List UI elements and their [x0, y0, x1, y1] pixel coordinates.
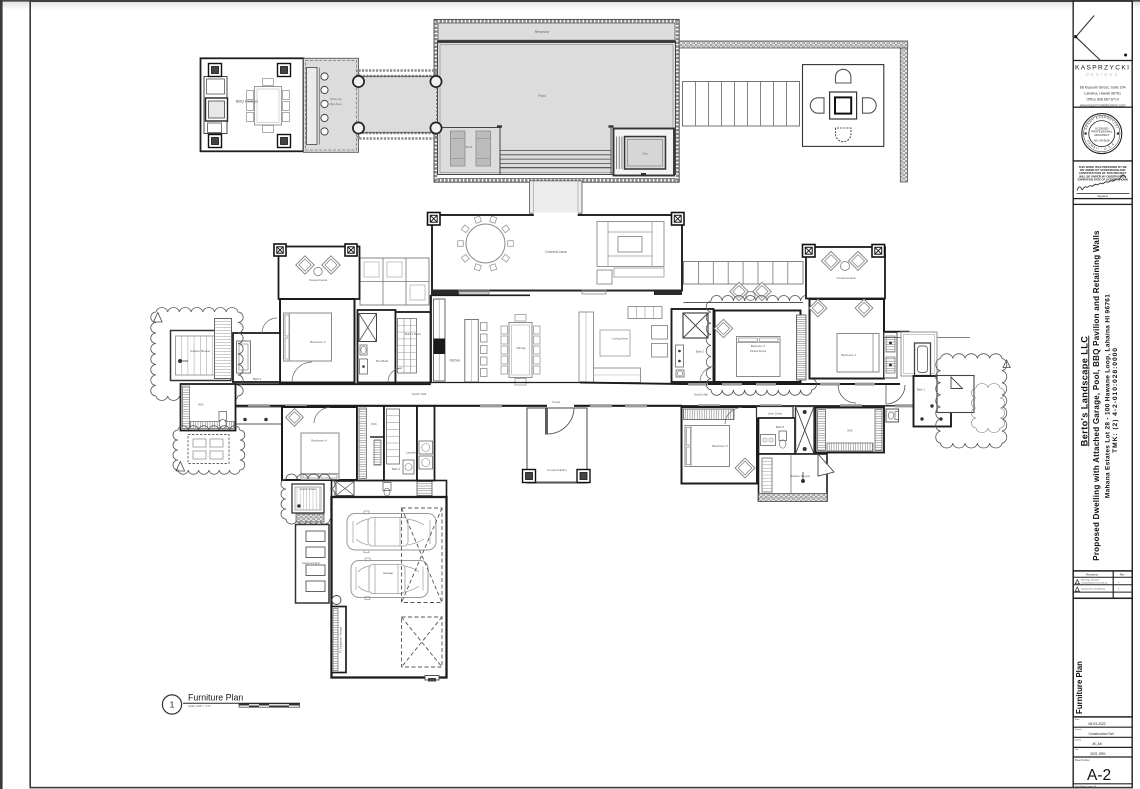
svg-text:Spa: Spa	[642, 152, 648, 156]
svg-text:Covered Lanai: Covered Lanai	[837, 276, 856, 280]
svg-text:Butler's Pantry: Butler's Pantry	[405, 333, 422, 336]
svg-text:WIC: WIC	[371, 422, 376, 426]
svg-text:Total Sheet Count: 34: Total Sheet Count: 34	[1075, 785, 1097, 788]
svg-text:Linen Closet: Linen Closet	[768, 411, 783, 415]
svg-text:Bath 3: Bath 3	[253, 377, 262, 381]
svg-text:revised 08-26-21 & 10-01-21: revised 08-26-21 & 10-01-21	[1081, 582, 1108, 585]
svg-text:ARCHITECT: ARCHITECT	[1094, 133, 1110, 137]
svg-text:Lahaina, Hawaii 96761: Lahaina, Hawaii 96761	[1084, 92, 1121, 96]
svg-text:Revisions: Revisions	[1086, 573, 1098, 577]
svg-text:(Ohana Room): (Ohana Room)	[750, 350, 767, 353]
svg-text:A-2: A-2	[1087, 767, 1111, 784]
svg-text:Living Area: Living Area	[612, 337, 628, 341]
svg-text:Laundry: Laundry	[406, 451, 416, 455]
svg-text:Scale: 3/16" = 1'-0": Scale: 3/16" = 1'-0"	[188, 704, 211, 708]
svg-text:Outdoor Shower: Outdoor Shower	[300, 488, 317, 491]
svg-text:South Hall: South Hall	[412, 392, 427, 396]
svg-text:Construction set 08-03-22: Construction set 08-03-22	[1081, 588, 1106, 591]
svg-text:Construction Set: Construction Set	[1088, 732, 1113, 736]
svg-text:Dining: Dining	[517, 346, 526, 350]
svg-text:Equipment Encl: Equipment Encl	[302, 562, 320, 565]
svg-text:Swim-Up: Swim-Up	[330, 97, 342, 101]
svg-text:Furniture Plan: Furniture Plan	[188, 693, 243, 703]
svg-text:Drawn: Drawn	[1075, 738, 1082, 741]
svg-text:Foyer: Foyer	[553, 400, 561, 404]
svg-text:DESIGNS: DESIGNS	[1086, 72, 1120, 77]
svg-text:Pool Bath: Pool Bath	[376, 359, 389, 363]
svg-text:WIC: WIC	[847, 429, 853, 433]
svg-text:Covered Lanai: Covered Lanai	[545, 250, 567, 254]
svg-text:Bath 4: Bath 4	[392, 467, 401, 471]
svg-text:Job: Job	[1075, 749, 1079, 751]
svg-text:WIC: WIC	[198, 403, 204, 407]
svg-text:Bedroom 3: Bedroom 3	[751, 344, 766, 348]
svg-text:NO. AR-9106: NO. AR-9106	[1094, 139, 1110, 143]
svg-text:68 Kupuohi Street, Suite 204: 68 Kupuohi Street, Suite 204	[1080, 86, 1126, 90]
svg-text:Sheet Number: Sheet Number	[1075, 759, 1090, 762]
svg-text:Project: Project	[1075, 728, 1082, 731]
svg-text:North Hall: North Hall	[694, 393, 708, 397]
svg-text:Bedroom 1: Bedroom 1	[841, 353, 856, 357]
svg-text:TMK: (2) 4-2-010:028:0000: TMK: (2) 4-2-010:028:0000	[1112, 347, 1119, 453]
svg-text:Covered Entry: Covered Entry	[547, 468, 567, 472]
svg-text:Bedroom 5: Bedroom 5	[712, 444, 727, 448]
svg-text:Kitchen: Kitchen	[450, 359, 461, 363]
svg-text:Bar Area: Bar Area	[330, 102, 342, 106]
svg-text:08-03-2022: 08-03-2022	[1088, 722, 1105, 726]
svg-text:Pool: Pool	[538, 94, 545, 98]
svg-text:1: 1	[170, 700, 175, 710]
svg-text:Furniture Plan: Furniture Plan	[1075, 661, 1084, 714]
svg-text:Bath 1: Bath 1	[917, 388, 926, 392]
svg-text:Proposed Dwelling with Attache: Proposed Dwelling with Attached Garage, …	[1092, 230, 1101, 561]
svg-text:Mahana Estates Lot 28 - 100 Ha: Mahana Estates Lot 28 - 100 Hawane Loop,…	[1105, 294, 1112, 498]
svg-text:Garage: Garage	[383, 571, 394, 575]
svg-text:PV Equipment Storage: PV Equipment Storage	[339, 626, 343, 653]
svg-text:KASPRZYCKI: KASPRZYCKI	[1075, 65, 1130, 72]
svg-text:Outdoor Shower: Outdoor Shower	[190, 349, 210, 353]
svg-text:JK, AK: JK, AK	[1092, 742, 1103, 746]
svg-text:Bath 5: Bath 5	[776, 425, 785, 429]
svg-text:Outdoor Shower: Outdoor Shower	[790, 474, 810, 478]
svg-text:Bath 2: Bath 2	[696, 350, 705, 354]
svg-text:Berto's Landscape LLC: Berto's Landscape LLC	[1079, 336, 1089, 447]
svg-text:Signature: Signature	[1097, 195, 1108, 198]
svg-text:2021 SRK: 2021 SRK	[1090, 752, 1106, 756]
svg-text:Planning comments: Planning comments	[1081, 579, 1099, 582]
svg-text:BBQ Pavilion: BBQ Pavilion	[236, 100, 258, 104]
svg-text:Covered Lanai: Covered Lanai	[309, 278, 328, 282]
svg-text:Bedroom 2: Bedroom 2	[310, 340, 325, 344]
svg-text:Office 808.667.6714: Office 808.667.6714	[1087, 98, 1119, 102]
svg-text:Date: Date	[1075, 718, 1080, 721]
svg-text:Reservoir: Reservoir	[535, 30, 550, 34]
svg-text:Bedroom 4: Bedroom 4	[311, 439, 326, 443]
svg-text:Rev: Rev	[1120, 574, 1125, 577]
